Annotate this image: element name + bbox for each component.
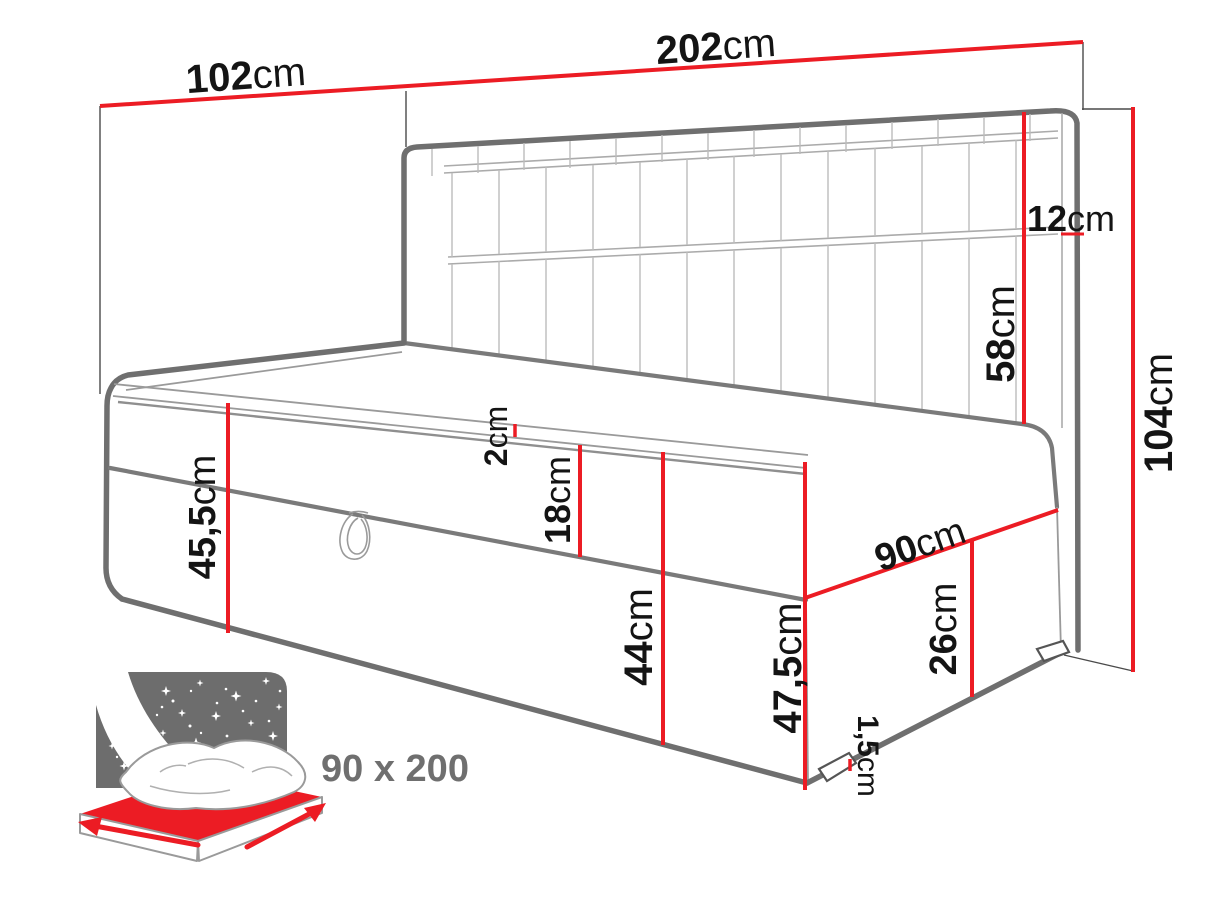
headboard-lower-tufting xyxy=(452,236,1016,422)
dim-label-26: 26cm xyxy=(923,583,965,676)
mattress-left-edge xyxy=(106,343,404,599)
icon-duvet xyxy=(120,741,305,810)
extension-104-bottom xyxy=(1064,655,1133,671)
dim-label-45-5: 45,5cm xyxy=(182,455,224,580)
storage-handle xyxy=(340,512,370,560)
dim-label-1-5: 1,5cm xyxy=(851,715,884,797)
headboard-shelf xyxy=(448,227,1058,264)
topper-top-edge xyxy=(114,384,808,455)
mattress-right-corner xyxy=(1022,424,1057,507)
dim-label-47-5: 47,5cm xyxy=(766,602,810,733)
dim-label-90: 90cm xyxy=(870,510,972,580)
back-foot xyxy=(1037,641,1069,661)
size-badge: 90 x 200 xyxy=(321,748,469,790)
dimension-labels: 102cm 202cm 12cm 58cm 104cm 45,5cm 2cm 1… xyxy=(182,20,1181,796)
dim-label-58: 58cm xyxy=(979,285,1023,383)
dim-label-12: 12cm xyxy=(1027,198,1115,239)
dim-label-202: 202cm xyxy=(654,20,777,72)
dim-label-44: 44cm xyxy=(617,588,661,686)
dim-label-102: 102cm xyxy=(184,49,307,101)
headboard-top-rail xyxy=(444,131,1058,173)
dimension-diagram: 102cm 202cm 12cm 58cm 104cm 45,5cm 2cm 1… xyxy=(0,0,1214,911)
mattress-size-icon: 90 x 200 xyxy=(78,672,469,861)
headboard-outline xyxy=(404,111,1078,650)
dim-label-104: 104cm xyxy=(1137,353,1181,473)
dim-label-2: 2cm xyxy=(478,406,514,466)
dim-label-18: 18cm xyxy=(537,456,578,544)
base-side-back-edge xyxy=(1057,507,1061,651)
